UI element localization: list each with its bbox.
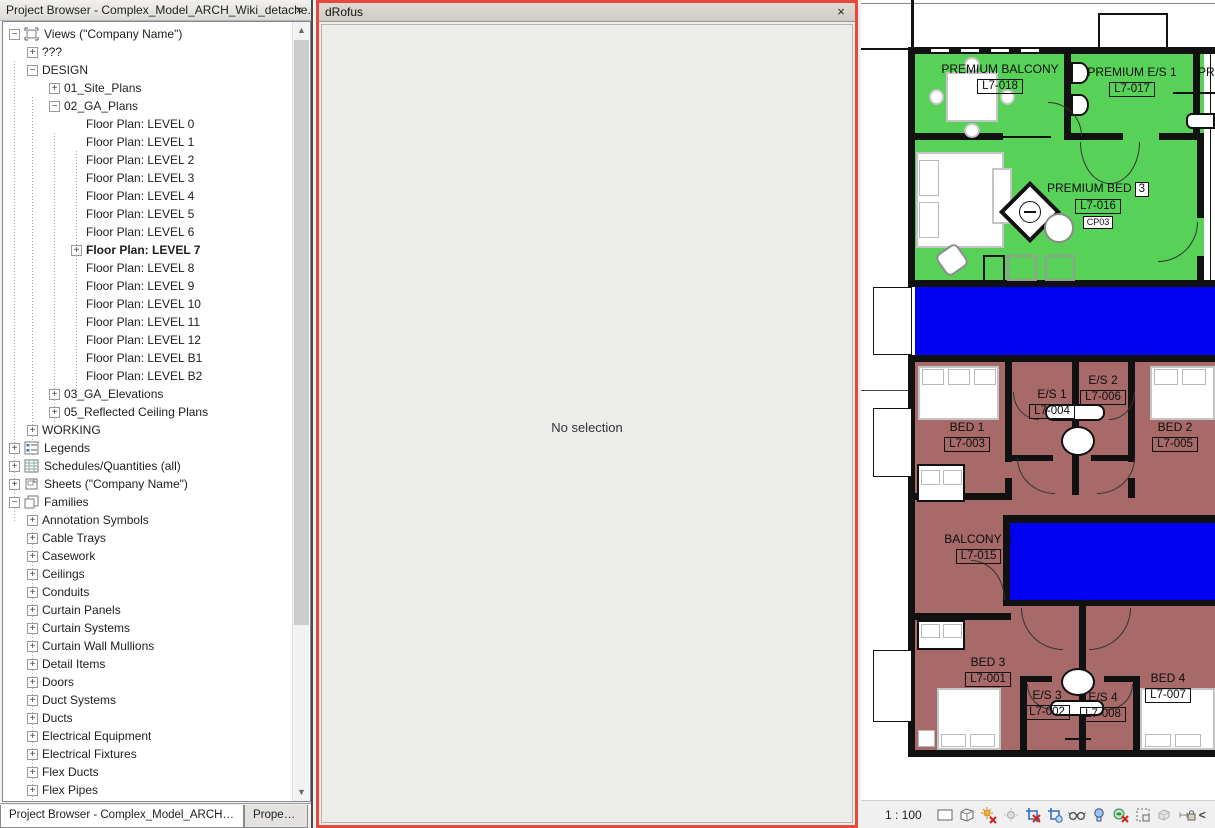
tree-item[interactable]: Floor Plan: LEVEL B2 [3, 367, 293, 385]
floor-plan-level7[interactable]: PREMIUM BALCONY L7-018 PREMIUM E/S 1 L7-… [861, 0, 1215, 800]
tree-scrollbar[interactable]: ▲ ▼ [292, 22, 309, 801]
tree-item[interactable]: +??? [3, 43, 293, 61]
expand-icon[interactable]: + [27, 785, 38, 796]
tree-item-label: Floor Plan: LEVEL 12 [86, 333, 201, 347]
tree-item-label: 02_GA_Plans [64, 99, 138, 113]
expand-icon[interactable]: + [27, 47, 38, 58]
room-name: BALCONY X [931, 533, 1026, 547]
room-name: PREMIUM BED3 [1033, 182, 1163, 197]
room-name: BED 2 [1135, 421, 1215, 435]
pillow [1175, 734, 1201, 747]
pillow [970, 734, 995, 747]
scroll-up-icon[interactable]: ▲ [293, 22, 310, 39]
tree-item[interactable]: +Curtain Wall Mullions [3, 637, 293, 655]
pillow [1182, 369, 1206, 385]
expand-icon[interactable]: + [27, 551, 38, 562]
drofus-panel: dRofus × No selection [316, 0, 858, 828]
drawing-line [861, 3, 1215, 4]
room-name: PREMIUM E/S 1 [1073, 66, 1191, 80]
detail-level-icon[interactable] [936, 805, 955, 824]
tree-item-label: Floor Plan: LEVEL 6 [86, 225, 194, 239]
tree-item-label: Curtain Panels [42, 603, 121, 617]
tab-properties[interactable]: Properties [244, 805, 308, 828]
tree-item[interactable]: −Views ("Company Name") [3, 25, 293, 43]
room-name: PR [1198, 66, 1215, 80]
room-number: L7-002 [1024, 705, 1070, 720]
wall [861, 48, 912, 50]
exterior-balcony-outline [873, 287, 912, 355]
collapse-icon[interactable]: − [27, 65, 38, 76]
tree-item[interactable]: Floor Plan: LEVEL 11 [3, 313, 293, 331]
tree-item-label: Flex Ducts [42, 765, 99, 779]
room-number: L7-017 [1109, 82, 1155, 97]
window [1021, 49, 1039, 52]
tree-item[interactable]: +Annotation Symbols [3, 511, 293, 529]
exterior-balcony-outline [873, 650, 912, 722]
tree-item[interactable]: +Electrical Equipment [3, 727, 293, 745]
tree-item[interactable]: Floor Plan: LEVEL 8 [3, 259, 293, 277]
tree-item-label: Schedules/Quantities (all) [44, 459, 181, 473]
expand-icon[interactable]: + [27, 767, 38, 778]
temporary-hide-isolate-icon[interactable] [1090, 805, 1109, 824]
expand-icon[interactable]: + [27, 425, 38, 436]
project-browser-title: Project Browser - Complex_Model_ARCH_Wik… [0, 0, 311, 21]
side-table [983, 255, 1005, 282]
tree-item-label: Floor Plan: LEVEL 10 [86, 297, 201, 311]
expand-icon[interactable]: + [27, 623, 38, 634]
room-name: BED 4 [1128, 672, 1208, 686]
room-label-premium-bed3: PREMIUM BED3 L7-016 CP03 [1033, 182, 1163, 229]
wall [1010, 600, 1215, 606]
tree-item[interactable]: +Flex Ducts [3, 763, 293, 781]
tree-item-label: Floor Plan: LEVEL 4 [86, 189, 194, 203]
tree-item[interactable]: +Floor Plan: LEVEL 7 [3, 241, 293, 259]
shadows-off-icon[interactable] [1002, 805, 1021, 824]
drofus-close-icon[interactable]: × [833, 4, 849, 20]
room-number: L7-004 [1029, 404, 1075, 419]
side-table [918, 730, 935, 747]
shelf [943, 470, 962, 485]
view-control-bar: 1 : 100 < [861, 800, 1215, 828]
tree-item-label: DESIGN [42, 63, 88, 77]
shelf [943, 624, 962, 638]
tree-item-label: Flex Pipes [42, 783, 98, 797]
expand-icon[interactable]: + [27, 659, 38, 670]
temporary-view-properties-icon[interactable] [1134, 805, 1153, 824]
expand-icon[interactable]: + [27, 569, 38, 580]
tree-item[interactable]: Floor Plan: LEVEL 10 [3, 295, 293, 313]
tree-item-label: Casework [42, 549, 95, 563]
project-browser-close-icon[interactable]: × [291, 2, 307, 18]
tree-item[interactable]: Floor Plan: LEVEL B1 [3, 349, 293, 367]
panel-tabs: Project Browser - Complex_Model_ARCH_Wi.… [0, 803, 311, 828]
tree-item-label: Duct Systems [42, 693, 116, 707]
room-name: E/S 2 [1068, 374, 1138, 388]
tree-item-label: Annotation Symbols [42, 513, 149, 527]
wall [908, 133, 1003, 140]
wall [908, 355, 1215, 362]
tree-item-label: Floor Plan: LEVEL 3 [86, 171, 194, 185]
tree-item[interactable]: Floor Plan: LEVEL 2 [3, 151, 293, 169]
worksharing-display-off-icon[interactable] [1112, 805, 1131, 824]
collapse-icon[interactable]: − [9, 497, 20, 508]
tab-project-browser[interactable]: Project Browser - Complex_Model_ARCH_Wi.… [0, 805, 244, 828]
drawing-area: PREMIUM BALCONY L7-018 PREMIUM E/S 1 L7-… [861, 0, 1215, 828]
wall [1197, 256, 1204, 287]
expand-icon[interactable]: + [71, 245, 82, 256]
tree-item[interactable]: +WORKING [3, 421, 293, 439]
expand-icon[interactable]: + [27, 677, 38, 688]
expand-icon[interactable]: + [49, 407, 60, 418]
expand-icon[interactable]: + [27, 713, 38, 724]
room-number: L7-016 [1075, 199, 1121, 214]
chair [1045, 255, 1075, 281]
expand-icon[interactable]: + [9, 479, 20, 490]
sheets-icon [24, 477, 40, 491]
tree-item-label: Electrical Fixtures [42, 747, 137, 761]
window [931, 49, 949, 52]
wall [908, 750, 1215, 757]
revit-window: Project Browser - Complex_Model_ARCH_Wik… [0, 0, 1215, 828]
schedules-icon [24, 459, 40, 473]
wall [1210, 54, 1211, 280]
tree-item-label: Electrical Equipment [42, 729, 151, 743]
tree-item[interactable]: Floor Plan: LEVEL 12 [3, 331, 293, 349]
room-number: L7-005 [1152, 437, 1198, 452]
tree-item[interactable]: +Doors [3, 673, 293, 691]
no-selection-message: No selection [322, 420, 852, 435]
pillow [974, 369, 996, 385]
tree-item[interactable]: +Cable Trays [3, 529, 293, 547]
tree-item-label: Floor Plan: LEVEL 11 [86, 315, 200, 329]
exterior-balcony-outline [873, 408, 912, 477]
toilet [1061, 426, 1095, 456]
wall [911, 0, 914, 50]
pillow [919, 160, 939, 196]
room-number: L7-006 [1080, 390, 1126, 405]
displaced-elements-icon[interactable] [1156, 805, 1175, 824]
tree-item[interactable]: +05_Reflected Ceiling Plans [3, 403, 293, 421]
expand-icon[interactable]: + [49, 83, 60, 94]
grid-bubble: 3 [1135, 182, 1149, 197]
tree-item-label: Detail Items [42, 657, 105, 671]
project-browser-panel: Project Browser - Complex_Model_ARCH_Wik… [0, 0, 313, 828]
window-line [1003, 136, 1051, 138]
tree-item[interactable]: +Sheets ("Company Name") [3, 475, 293, 493]
sink [1071, 94, 1089, 116]
wall [908, 613, 1011, 620]
tree-item-label: 05_Reflected Ceiling Plans [64, 405, 208, 419]
room-label-clipped: PR [1198, 66, 1215, 80]
tree-item-label: 01_Site_Plans [64, 81, 141, 95]
tree-item-label: Floor Plan: LEVEL 8 [86, 261, 194, 275]
tree-item[interactable]: +Schedules/Quantities (all) [3, 457, 293, 475]
reveal-hidden-elements-icon[interactable] [1068, 805, 1087, 824]
room-number: L7-007 [1145, 688, 1191, 703]
pillow [1145, 734, 1171, 747]
shelf [921, 470, 940, 485]
room-label-bed2: BED 2 L7-005 [1135, 421, 1215, 452]
tree-item[interactable]: Floor Plan: LEVEL 1 [3, 133, 293, 151]
legends-icon [24, 441, 40, 455]
expand-icon[interactable]: + [9, 461, 20, 472]
room-label-balcony-x: BALCONY X L7-015 [931, 533, 1026, 564]
chair [1007, 255, 1037, 281]
tree-item[interactable]: +Detail Items [3, 655, 293, 673]
tree-item[interactable]: −02_GA_Plans [3, 97, 293, 115]
view-control-icons [936, 805, 1197, 824]
tree-item-label: Conduits [42, 585, 89, 599]
room-number: L7-001 [965, 672, 1011, 687]
scroll-down-icon[interactable]: ▼ [293, 784, 310, 801]
tree-item[interactable]: +Casework [3, 547, 293, 565]
room-number: L7-018 [977, 79, 1023, 94]
tree-item-label: 03_GA_Elevations [64, 387, 163, 401]
tree-item[interactable]: Floor Plan: LEVEL 3 [3, 169, 293, 187]
window [991, 49, 1009, 52]
room-name: PREMIUM BALCONY [915, 63, 1085, 77]
drofus-panel-title: dRofus [319, 3, 855, 22]
tree-item-label: Ducts [42, 711, 73, 725]
tree-item-label: Ceilings [42, 567, 85, 581]
collapse-icon[interactable]: < [1199, 808, 1206, 822]
expand-icon[interactable]: + [27, 515, 38, 526]
crop-view-off-icon[interactable] [1024, 805, 1043, 824]
tree-item[interactable]: Floor Plan: LEVEL 5 [3, 205, 293, 223]
tree-item-label: Doors [42, 675, 74, 689]
room-label-bed1: BED 1 L7-003 [927, 421, 1007, 452]
tree-item[interactable]: +Duct Systems [3, 691, 293, 709]
tree-item-label: Floor Plan: LEVEL 1 [86, 135, 194, 149]
pillow [919, 202, 939, 238]
expand-icon[interactable]: + [27, 587, 38, 598]
tree-item-label: ??? [42, 45, 62, 59]
families-icon [24, 495, 40, 509]
expand-icon[interactable]: + [27, 605, 38, 616]
bathtub [1186, 113, 1215, 129]
sun-path-off-icon[interactable] [980, 805, 999, 824]
tree-item[interactable]: +01_Site_Plans [3, 79, 293, 97]
tree-item[interactable]: Floor Plan: LEVEL 4 [3, 187, 293, 205]
tree-item[interactable]: Floor Plan: LEVEL 9 [3, 277, 293, 295]
expand-icon[interactable]: + [27, 749, 38, 760]
tree-item[interactable]: +03_GA_Elevations [3, 385, 293, 403]
tree-item-label: Floor Plan: LEVEL 9 [86, 279, 194, 293]
room-label-premium-balcony: PREMIUM BALCONY L7-018 [915, 63, 1085, 94]
tree-item[interactable]: −Families [3, 493, 293, 511]
tree-item-label: Curtain Wall Mullions [42, 639, 154, 653]
tree-item-label: Cable Trays [42, 531, 106, 545]
tree-item-label: Floor Plan: LEVEL B1 [86, 351, 202, 365]
project-browser-body: −Views ("Company Name")+???−DESIGN+01_Si… [2, 21, 311, 802]
tree-item-label: Sheets ("Company Name") [44, 477, 188, 491]
reveal-constraints-icon[interactable] [1178, 805, 1197, 824]
expand-icon[interactable]: + [27, 695, 38, 706]
room-tag: CP03 [1083, 216, 1114, 228]
room-label-bed4: BED 4 L7-007 [1128, 672, 1208, 703]
shelf [921, 624, 940, 638]
expand-icon[interactable]: + [27, 731, 38, 742]
fixture-symbol [1065, 738, 1091, 740]
expand-icon[interactable]: + [49, 389, 60, 400]
collapse-icon[interactable]: − [9, 29, 20, 40]
tree-item-label: Floor Plan: LEVEL 5 [86, 207, 194, 221]
drawing-line [861, 390, 908, 391]
tree-item-label: WORKING [42, 423, 101, 437]
expand-icon[interactable]: + [27, 641, 38, 652]
chair [964, 123, 980, 138]
tree-item[interactable]: +Legends [3, 439, 293, 457]
expand-icon[interactable]: + [9, 443, 20, 454]
tree-item[interactable]: +Ducts [3, 709, 293, 727]
wall [1197, 140, 1204, 218]
room-corridor[interactable] [915, 287, 1215, 355]
tree-item-label: Curtain Systems [42, 621, 130, 635]
room-number: L7-003 [944, 437, 990, 452]
visual-style-icon[interactable] [958, 805, 977, 824]
tree-item[interactable]: Floor Plan: LEVEL 6 [3, 223, 293, 241]
room-name: BED 3 [948, 656, 1028, 670]
room-label-bed3: BED 3 L7-001 [948, 656, 1028, 687]
tree-item[interactable]: +Ceilings [3, 565, 293, 583]
room-label-premium-es1: PREMIUM E/S 1 L7-017 [1073, 66, 1191, 97]
expand-icon[interactable]: + [27, 533, 38, 544]
tree-item-label: Views ("Company Name") [44, 27, 182, 41]
tree-item-label: Floor Plan: LEVEL B2 [86, 369, 202, 383]
tree-item[interactable]: +Conduits [3, 583, 293, 601]
tree-item-label: Legends [44, 441, 90, 455]
room-number: L7-015 [956, 549, 1002, 564]
wall [1003, 515, 1215, 523]
room-name: BED 1 [927, 421, 1007, 435]
pillow [948, 369, 970, 385]
window [961, 49, 979, 52]
wall [1128, 478, 1135, 498]
scrollbar-thumb[interactable] [294, 40, 309, 625]
tree-item[interactable]: Floor Plan: LEVEL 0 [3, 115, 293, 133]
tree-item-label: Floor Plan: LEVEL 7 [86, 243, 200, 257]
pillow [922, 369, 944, 385]
tree-item[interactable]: +Flex Pipes [3, 781, 293, 799]
tree-item[interactable]: −DESIGN [3, 61, 293, 79]
drofus-content: No selection [321, 24, 853, 823]
tree-item[interactable]: +Curtain Panels [3, 601, 293, 619]
view-scale[interactable]: 1 : 100 [885, 808, 922, 822]
tree-item[interactable]: +Curtain Systems [3, 619, 293, 637]
project-browser-tree: −Views ("Company Name")+???−DESIGN+01_Si… [3, 25, 293, 799]
tree-item-label: Floor Plan: LEVEL 2 [86, 153, 194, 167]
tree-item[interactable]: +Electrical Fixtures [3, 745, 293, 763]
collapse-icon[interactable]: − [49, 101, 60, 112]
show-crop-region-icon[interactable] [1046, 805, 1065, 824]
pillow [1154, 369, 1178, 385]
room-number: L7-008 [1080, 707, 1126, 722]
tree-item-label: Families [44, 495, 89, 509]
views-icon [24, 27, 40, 41]
pillow [941, 734, 966, 747]
room-corridor[interactable] [1010, 523, 1215, 600]
tree-item-label: Floor Plan: LEVEL 0 [86, 117, 194, 131]
room-label-es2: E/S 2 L7-006 [1068, 374, 1138, 405]
